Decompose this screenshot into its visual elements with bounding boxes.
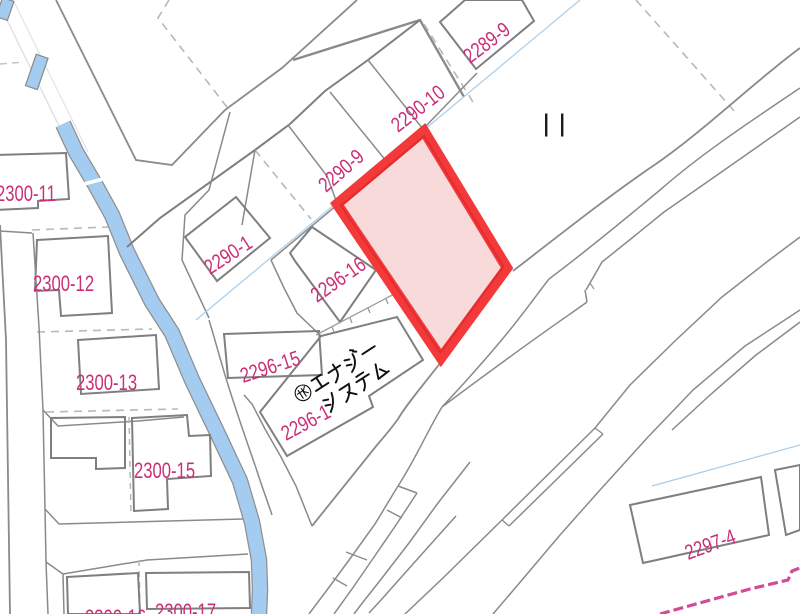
svg-text:2300-17: 2300-17: [155, 600, 216, 614]
svg-text:2300-16: 2300-16: [85, 606, 146, 614]
svg-text:2300-12: 2300-12: [33, 272, 94, 297]
svg-text:2300-15: 2300-15: [134, 459, 195, 484]
svg-text:2300-11: 2300-11: [0, 182, 56, 207]
svg-text:2300-13: 2300-13: [76, 371, 137, 396]
